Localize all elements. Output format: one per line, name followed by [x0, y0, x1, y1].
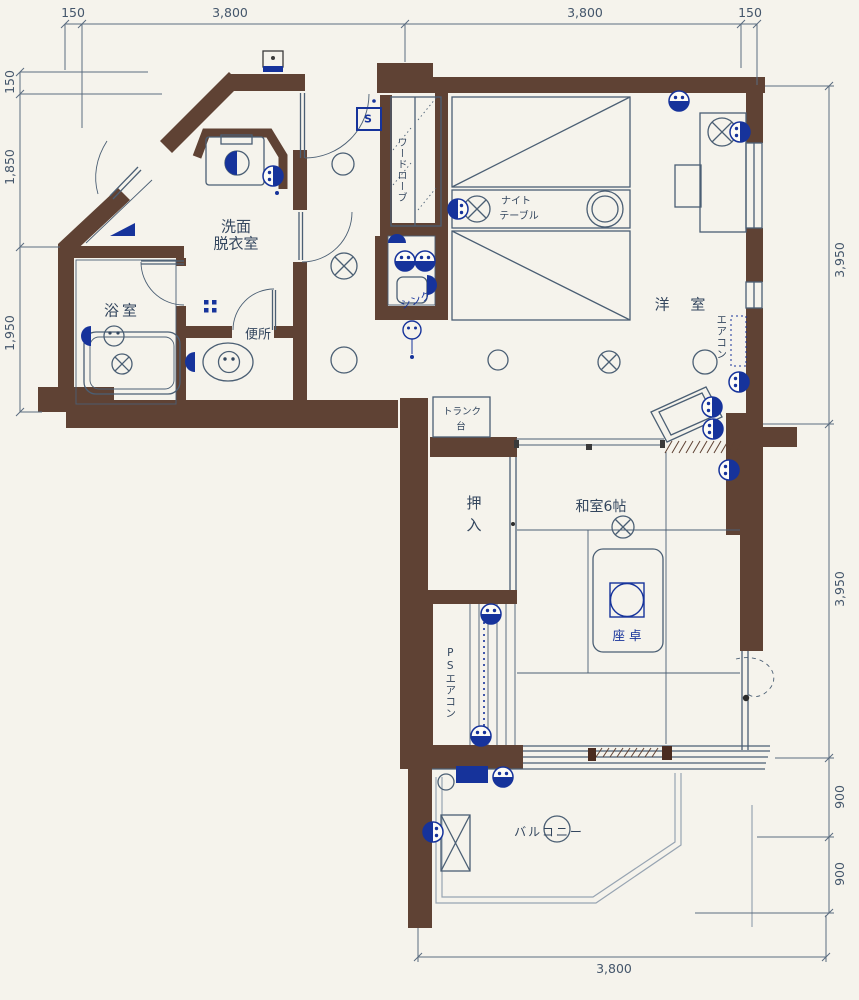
- windows: [746, 143, 762, 308]
- outlet-ps-bottom: [471, 726, 491, 746]
- outlet-tv-2: [703, 419, 723, 439]
- bath-faucet: [81, 326, 91, 346]
- outlet-aircon: [729, 372, 749, 392]
- room-label-japanese: 和室6帖: [576, 500, 627, 514]
- label-aircon: エアコン: [716, 314, 727, 360]
- sill-hatch-south: [596, 748, 658, 757]
- outlet-desk: [730, 122, 750, 142]
- ps-duct: [470, 604, 515, 745]
- room-label-balcony: バルコニー: [514, 826, 584, 838]
- dim-top-3800-right: 3,800: [567, 7, 603, 20]
- outlet-ps-top: [481, 604, 501, 624]
- outlet-balcony-2: [423, 822, 443, 842]
- closet-fusuma: [510, 457, 516, 590]
- aircon-unit-bedroom: [731, 316, 746, 366]
- dim-right-3950-lower: 3,950: [834, 571, 847, 607]
- room-label-washroom-2: 脱衣室: [213, 237, 258, 252]
- label-ps-aircon: PSエアコン: [445, 647, 456, 719]
- tatami-room: [514, 439, 742, 744]
- outlet-sink-2: [415, 251, 435, 271]
- room-label-washroom-1: 洗面: [221, 220, 251, 235]
- label-low-table: 座卓: [612, 630, 645, 643]
- outlet-washroom: [263, 166, 283, 186]
- room-label-bath: 浴室: [104, 304, 140, 319]
- dim-left-1950: 1,950: [4, 315, 17, 351]
- outlet-sink-1: [395, 251, 415, 271]
- dim-top-150-left: 150: [61, 7, 85, 20]
- label-trunk-2: 台: [456, 422, 466, 432]
- dim-right-900-lower: 900: [834, 862, 847, 886]
- toilet-bowl: [203, 343, 253, 381]
- outlet-tatami: [719, 460, 739, 480]
- floor-plan-drawing: [0, 0, 859, 1000]
- outlet-balcony-1: [493, 767, 513, 787]
- dim-left-150: 150: [4, 70, 17, 94]
- balcony: [436, 766, 752, 927]
- dim-top-3800-left: 3,800: [212, 7, 248, 20]
- room-label-closet: 押入: [466, 495, 481, 539]
- dim-right-900-upper: 900: [834, 785, 847, 809]
- toilet-tank: [185, 352, 195, 372]
- label-trunk-1: トランク: [443, 407, 481, 417]
- room-label-toilet: 便所: [245, 329, 271, 342]
- label-switch: S: [364, 114, 372, 125]
- outlet-tv-1: [702, 397, 722, 417]
- chair: [675, 165, 701, 207]
- room-label-western: 洋 室: [655, 298, 714, 313]
- beds: [452, 97, 630, 320]
- outlet-bedroom-top: [669, 91, 689, 111]
- label-night-table-2: テーブル: [499, 212, 538, 222]
- dim-top-150-right: 150: [738, 7, 762, 20]
- doorbell: [263, 51, 283, 72]
- floor-plan: 150 3,800 3,800 150 150 1,850 1,950 3,95…: [0, 0, 859, 1000]
- outlet-night-table: [448, 199, 468, 219]
- switch-below-sink: [403, 321, 421, 339]
- toilet: [185, 343, 253, 381]
- walls: [38, 63, 797, 928]
- dim-left-1850: 1,850: [4, 149, 17, 185]
- bathroom: [76, 260, 180, 404]
- dim-right-3950-upper: 3,950: [834, 242, 847, 278]
- dim-bottom-3800: 3,800: [596, 963, 632, 976]
- entry-step-marker: [110, 223, 135, 236]
- label-night-table-1: ナイト: [501, 197, 531, 207]
- label-wardrobe: ワードローブ: [395, 137, 405, 203]
